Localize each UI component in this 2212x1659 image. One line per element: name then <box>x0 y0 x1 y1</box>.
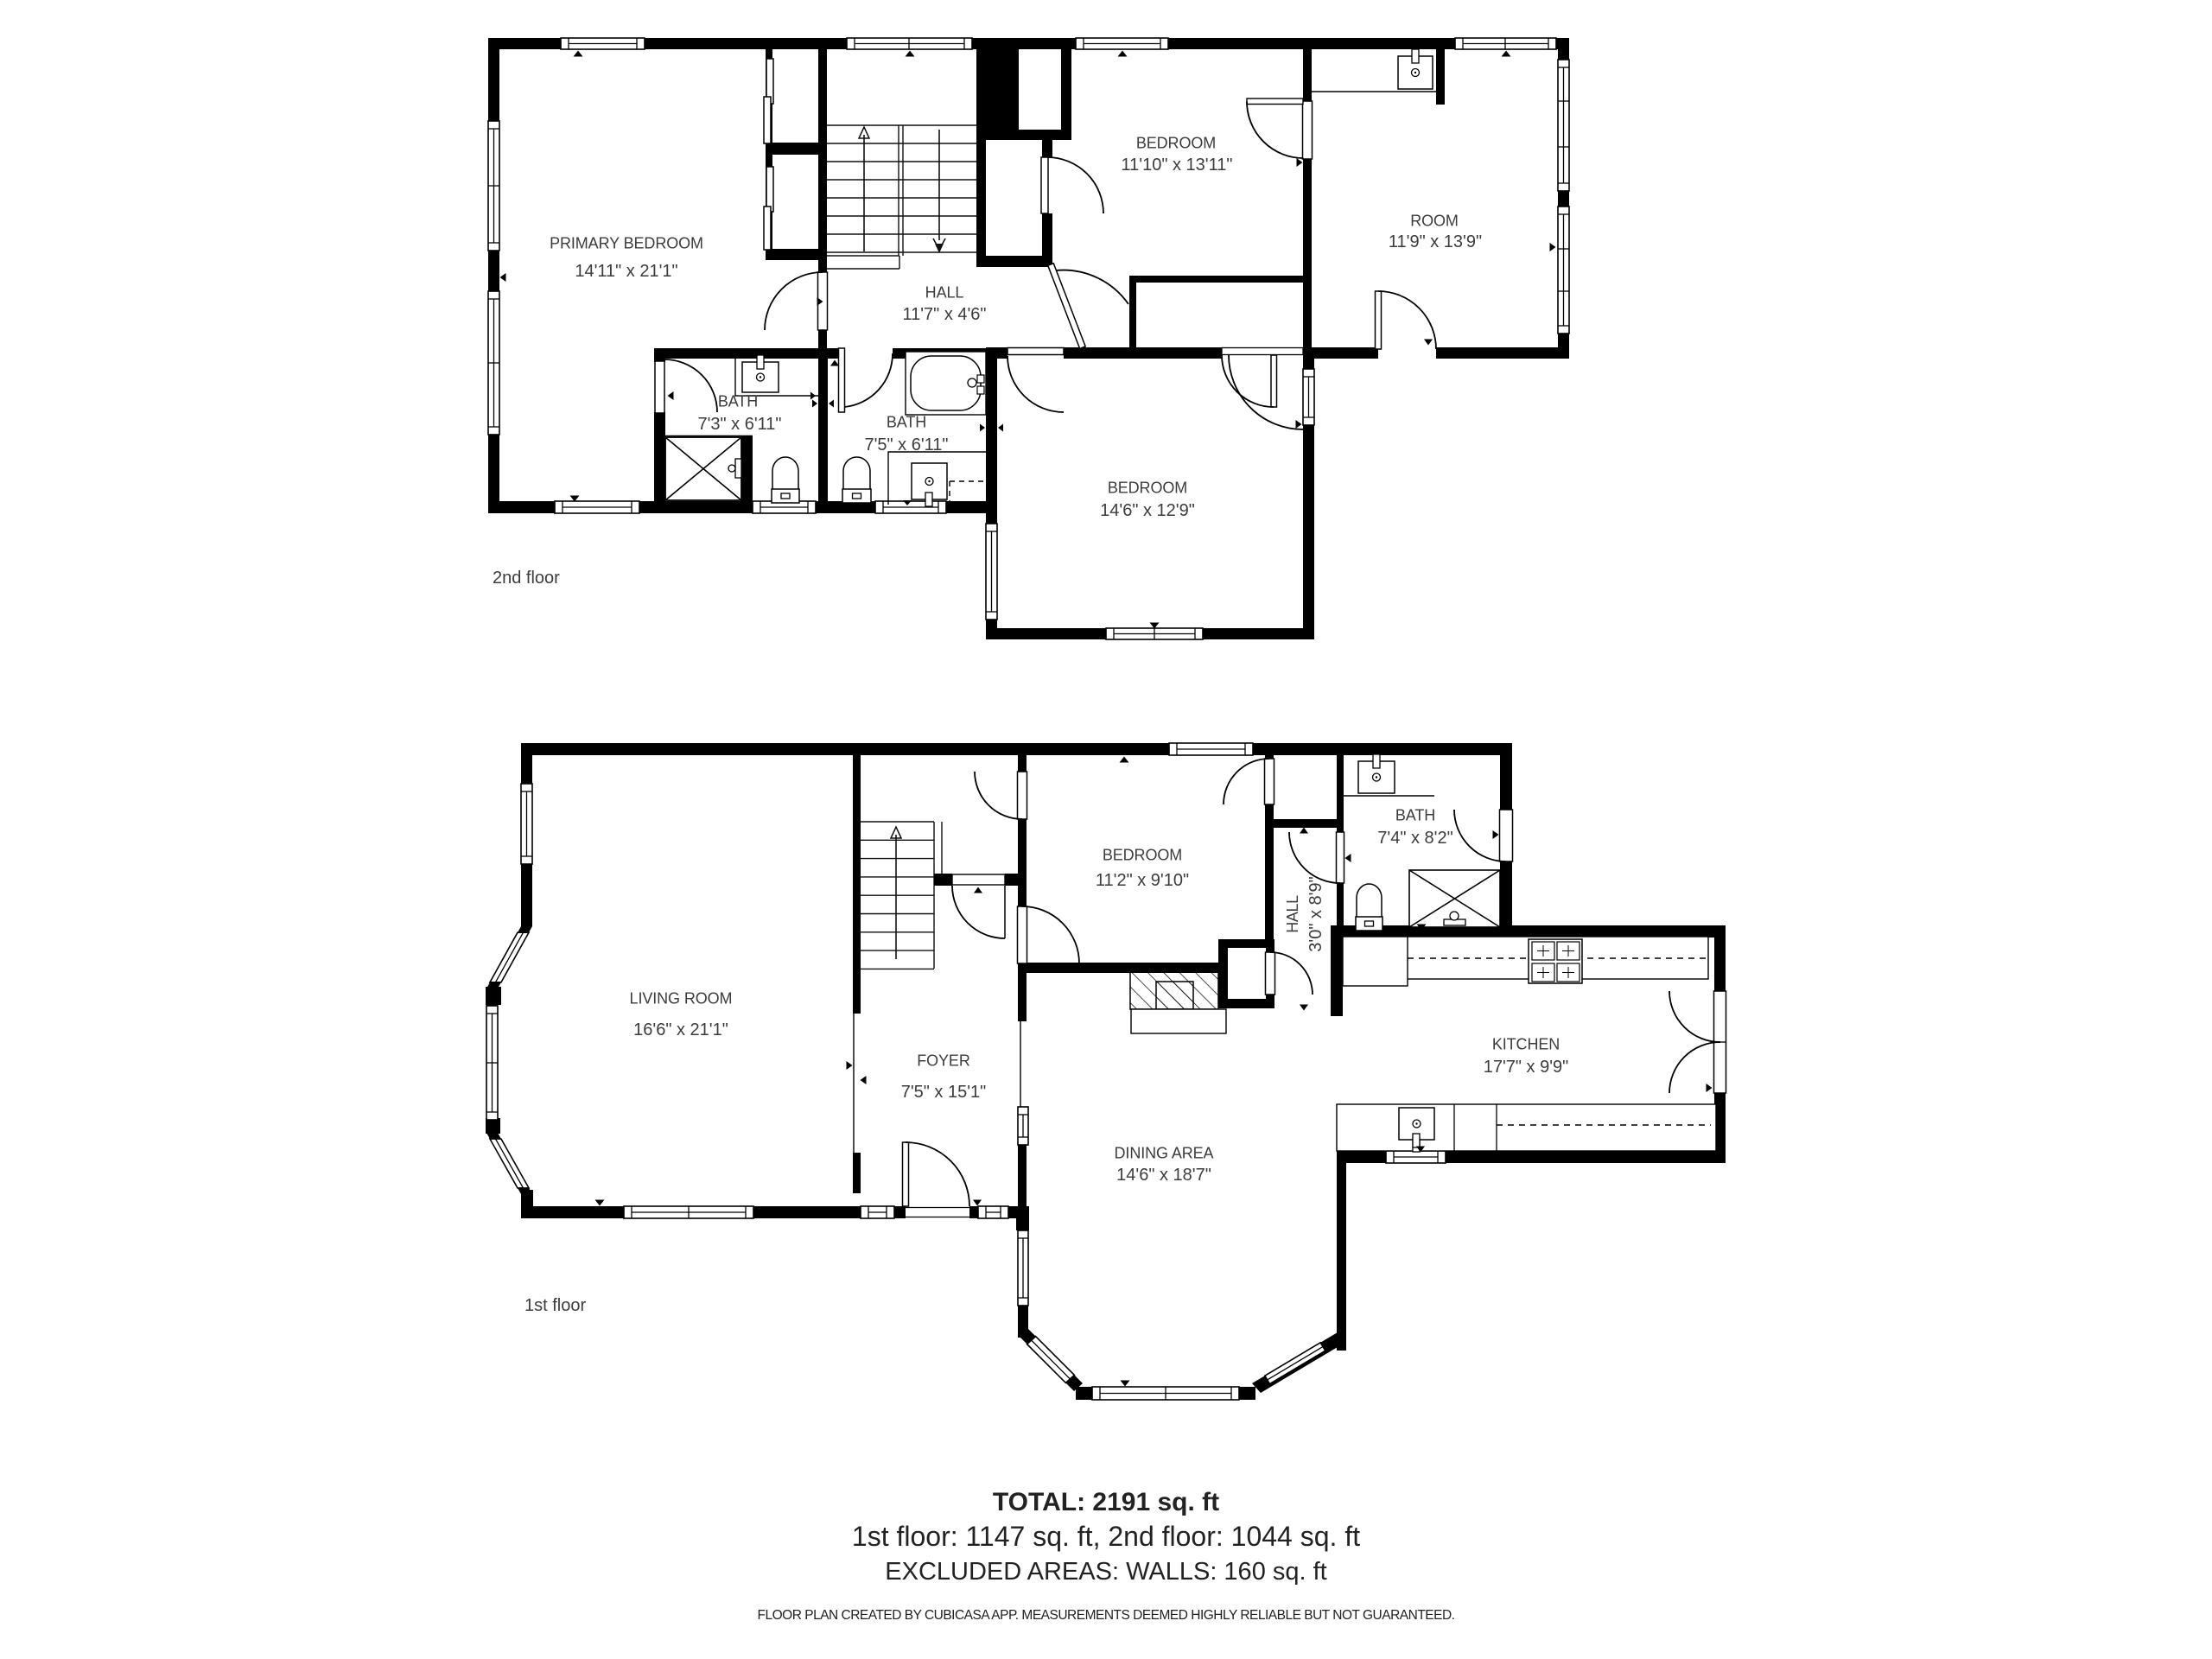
svg-text:7'5" x 15'1": 7'5" x 15'1" <box>901 1083 987 1102</box>
svg-text:FOYER: FOYER <box>917 1052 970 1070</box>
svg-text:BATH: BATH <box>887 414 926 431</box>
svg-text:FLOOR PLAN CREATED BY CUBICASA: FLOOR PLAN CREATED BY CUBICASA APP. MEAS… <box>758 1608 1455 1623</box>
svg-text:BATH: BATH <box>1395 807 1435 824</box>
svg-text:KITCHEN: KITCHEN <box>1492 1036 1560 1053</box>
svg-text:14'11" x 21'1": 14'11" x 21'1" <box>575 262 677 281</box>
svg-text:HALL: HALL <box>925 284 964 302</box>
svg-text:1st floor: 1st floor <box>524 1296 586 1315</box>
svg-text:EXCLUDED AREAS: WALLS: 160 sq.: EXCLUDED AREAS: WALLS: 160 sq. ft <box>885 1558 1326 1586</box>
svg-text:HALL: HALL <box>1284 895 1301 933</box>
svg-text:BEDROOM: BEDROOM <box>1136 135 1216 152</box>
svg-text:7'5" x 6'11": 7'5" x 6'11" <box>864 435 948 454</box>
svg-text:BATH: BATH <box>718 393 758 410</box>
svg-text:16'6" x 21'1": 16'6" x 21'1" <box>633 1020 728 1039</box>
svg-text:LIVING ROOM: LIVING ROOM <box>630 990 733 1007</box>
svg-text:3'0" x 8'9": 3'0" x 8'9" <box>1306 876 1325 951</box>
svg-text:17'7" x 9'9": 17'7" x 9'9" <box>1484 1058 1569 1077</box>
svg-text:7'3" x 6'11": 7'3" x 6'11" <box>697 415 781 434</box>
svg-text:DINING AREA: DINING AREA <box>1115 1145 1214 1162</box>
svg-text:7'4" x 8'2": 7'4" x 8'2" <box>1377 829 1452 848</box>
svg-text:11'10" x 13'11": 11'10" x 13'11" <box>1122 156 1233 175</box>
svg-text:14'6" x 18'7": 14'6" x 18'7" <box>1116 1166 1211 1185</box>
svg-text:TOTAL: 2191 sq. ft: TOTAL: 2191 sq. ft <box>993 1488 1219 1516</box>
svg-text:14'6" x 12'9": 14'6" x 12'9" <box>1100 501 1195 520</box>
svg-text:1st floor: 1147 sq. ft, 2nd fl: 1st floor: 1147 sq. ft, 2nd floor: 1044 … <box>852 1521 1360 1552</box>
svg-text:2nd floor: 2nd floor <box>493 569 560 588</box>
svg-text:BEDROOM: BEDROOM <box>1108 480 1187 497</box>
svg-text:BEDROOM: BEDROOM <box>1103 847 1182 864</box>
svg-text:ROOM: ROOM <box>1410 213 1459 230</box>
svg-text:11'9" x 13'9": 11'9" x 13'9" <box>1389 232 1482 251</box>
svg-text:PRIMARY BEDROOM: PRIMARY BEDROOM <box>550 235 703 252</box>
svg-text:11'2" x 9'10": 11'2" x 9'10" <box>1096 871 1189 890</box>
svg-text:11'7" x 4'6": 11'7" x 4'6" <box>902 305 986 324</box>
